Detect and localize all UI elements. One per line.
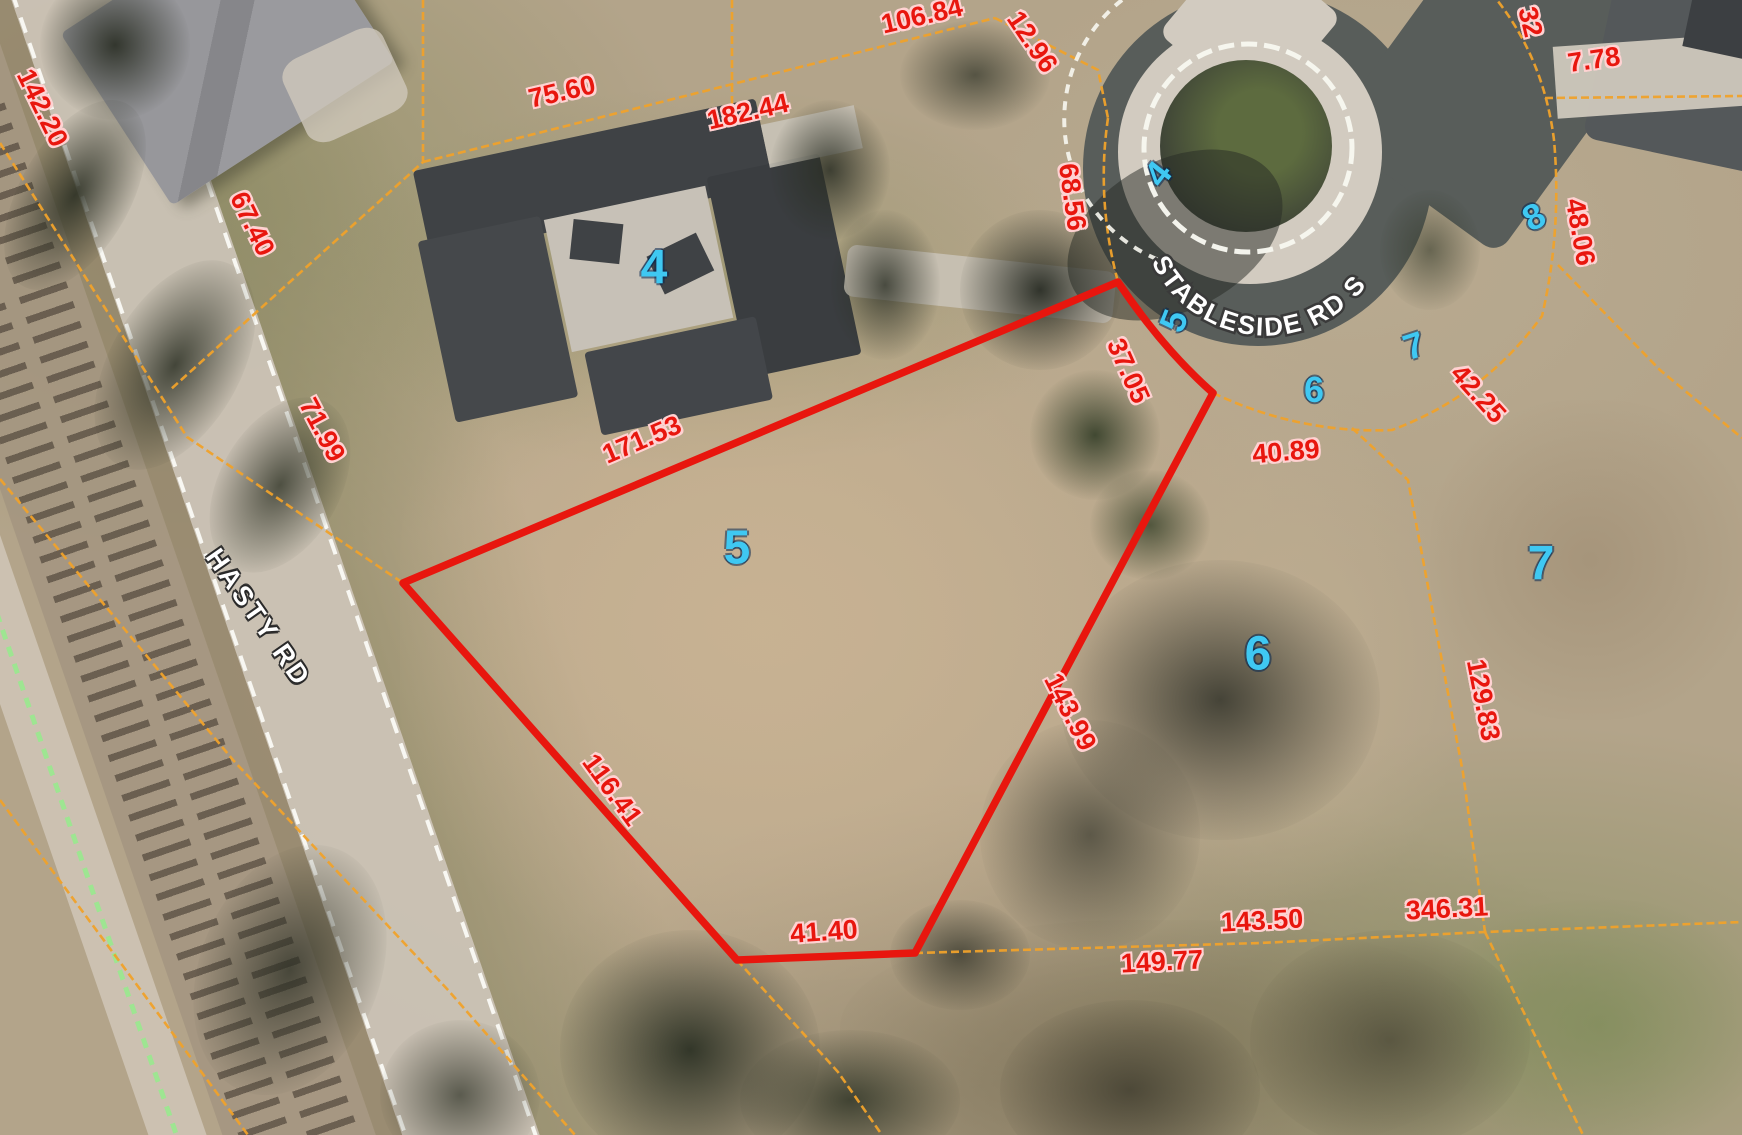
parcel-boundary-lines: [0, 0, 1742, 1135]
dimension-label: 40.89: [1251, 434, 1321, 471]
dimension-label: 346.31: [1405, 891, 1489, 926]
aerial-parcel-map[interactable]: STABLESIDE RD S 142.20 67.40 71.99 75.60…: [0, 0, 1742, 1135]
lot-number-6: 6: [1245, 627, 1272, 682]
lot-number-6-street: 6: [1304, 369, 1324, 411]
highlighted-parcel-lot5[interactable]: [403, 282, 1213, 960]
culdesac-inner-curb: [1144, 44, 1352, 252]
lot-number-4: 4: [641, 241, 668, 296]
dimension-label: 143.50: [1220, 903, 1304, 938]
dimension-label: 149.77: [1120, 944, 1204, 979]
parcel-linework: STABLESIDE RD S: [0, 0, 1742, 1135]
lot-number-5: 5: [724, 521, 751, 576]
dimension-label: 41.40: [789, 914, 859, 950]
lot-number-7: 7: [1528, 537, 1555, 592]
